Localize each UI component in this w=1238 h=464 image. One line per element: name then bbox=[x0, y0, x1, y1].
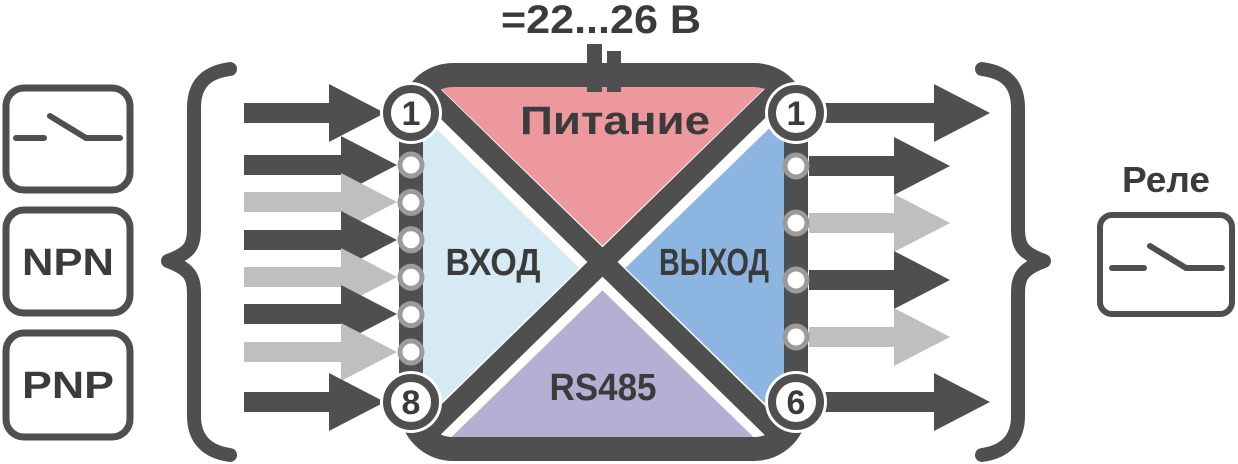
terminal-right-1: 1 bbox=[765, 82, 827, 144]
wiring-diagram: NPN PNP Питание ВХОД bbox=[0, 0, 1238, 464]
right-terminal-dot-3 bbox=[785, 269, 807, 291]
dry-contact-box bbox=[6, 88, 130, 190]
left-terminal-dot-2 bbox=[400, 191, 422, 213]
output-section-label: ВЫХОД bbox=[659, 242, 769, 284]
right-terminal-dot-1 bbox=[785, 155, 807, 177]
left-terminal-dot-4 bbox=[400, 266, 422, 288]
relay-box-frame bbox=[1100, 215, 1232, 314]
input-arrow-7 bbox=[244, 323, 397, 381]
terminal-right-6: 6 bbox=[765, 371, 827, 433]
right-terminal-dot-2 bbox=[785, 212, 807, 234]
terminal-right-last-number: 6 bbox=[787, 384, 806, 422]
right-brace bbox=[982, 69, 1044, 455]
output-arrow-1 bbox=[822, 84, 990, 142]
output-arrow-5 bbox=[809, 308, 950, 366]
left-terminal-dot-1 bbox=[400, 154, 422, 176]
output-arrow-6 bbox=[822, 373, 990, 431]
left-terminal-dot-5 bbox=[400, 304, 422, 326]
input-arrow-3 bbox=[244, 173, 397, 231]
relay-output: Реле bbox=[1100, 159, 1232, 314]
rs485-section-label: RS485 bbox=[550, 367, 657, 409]
input-arrow-4 bbox=[244, 211, 397, 269]
output-arrow-4 bbox=[809, 251, 950, 309]
terminal-right-first-number: 1 bbox=[787, 95, 806, 133]
terminal-left-first-number: 1 bbox=[402, 95, 421, 133]
relay-box bbox=[1100, 215, 1232, 314]
power-section-label: Питание bbox=[520, 99, 710, 143]
supply-voltage-label: =22...26 В bbox=[501, 0, 701, 42]
input-arrow-1 bbox=[244, 84, 385, 142]
output-arrow-3 bbox=[809, 194, 950, 252]
input-arrows bbox=[244, 84, 397, 431]
terminal-left-last-number: 8 bbox=[402, 384, 421, 422]
relay-label: Реле bbox=[1122, 159, 1210, 200]
input-section-label: ВХОД bbox=[446, 242, 541, 284]
input-arrow-6 bbox=[244, 285, 397, 343]
terminal-left-8: 8 bbox=[380, 371, 442, 433]
device-square: Питание ВХОД ВЫХОД RS485 1 8 1 6 bbox=[380, 44, 827, 454]
left-terminal-dot-3 bbox=[400, 229, 422, 251]
npn-label: NPN bbox=[22, 242, 114, 284]
source-boxes: NPN PNP bbox=[6, 88, 130, 437]
pnp-box: PNP bbox=[6, 333, 130, 437]
input-arrow-2 bbox=[244, 136, 397, 194]
input-arrow-5 bbox=[244, 248, 397, 306]
terminal-left-1: 1 bbox=[380, 82, 442, 144]
left-brace bbox=[168, 69, 230, 455]
right-terminal-dot-4 bbox=[785, 326, 807, 348]
output-arrows bbox=[809, 84, 990, 431]
left-terminal-dot-6 bbox=[400, 341, 422, 363]
pnp-label: PNP bbox=[22, 365, 114, 407]
output-arrow-2 bbox=[809, 137, 950, 195]
npn-box: NPN bbox=[6, 210, 130, 313]
input-arrow-8 bbox=[244, 373, 385, 431]
right-terminal-bar bbox=[784, 105, 808, 400]
